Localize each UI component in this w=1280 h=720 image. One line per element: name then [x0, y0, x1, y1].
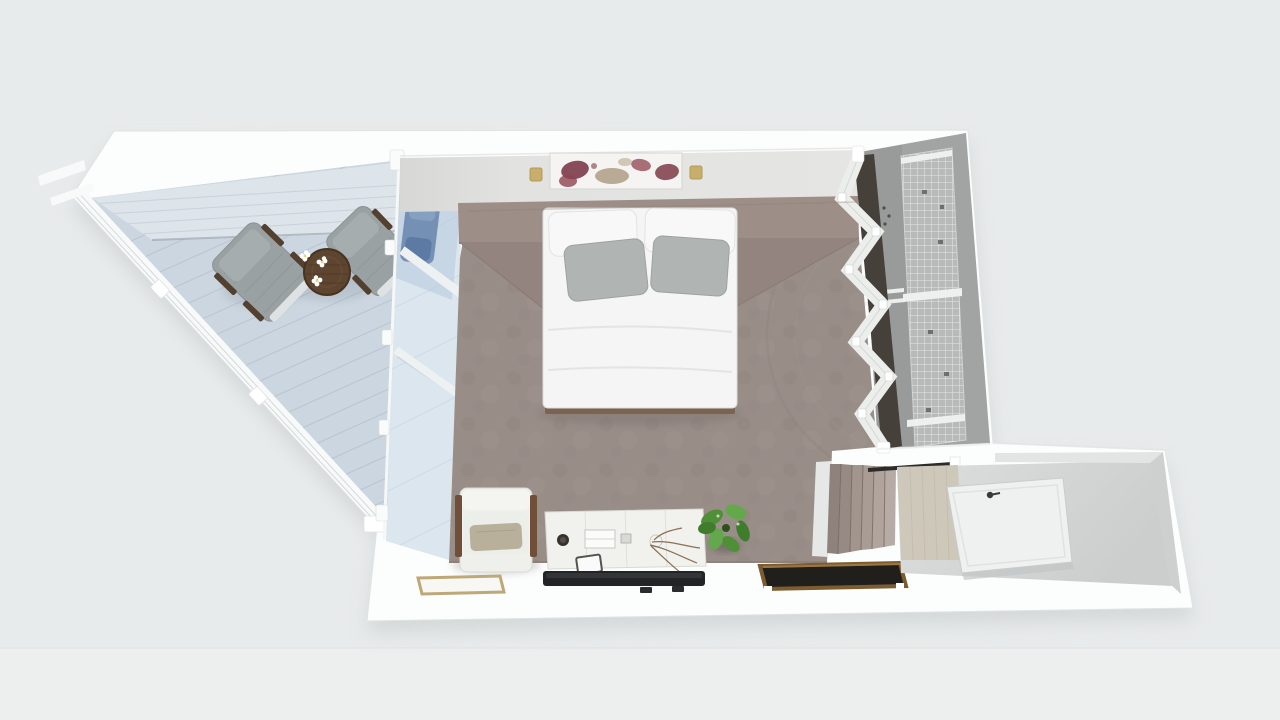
desk-foot	[896, 583, 904, 589]
pillow-gray-right	[650, 235, 730, 296]
decor-square	[621, 534, 631, 543]
desk	[760, 563, 906, 592]
dresser	[545, 509, 706, 575]
tv-bracket	[672, 586, 684, 592]
pillow-gray-left	[563, 238, 648, 302]
floorplan-render	[0, 0, 1280, 720]
tv-bracket	[640, 587, 652, 593]
bed	[538, 208, 742, 425]
desk-foot	[764, 586, 772, 592]
entry-hall	[897, 452, 1181, 594]
door-jamb-bottom	[877, 442, 890, 453]
wall-art	[550, 153, 682, 189]
floorplan-canvas	[0, 0, 1280, 720]
armchair	[452, 488, 540, 574]
sconce-left	[530, 168, 542, 181]
entry-top-wall-face	[995, 452, 1163, 463]
sconce-right	[690, 166, 702, 179]
door-jamb-top	[852, 146, 864, 162]
entry-door	[947, 478, 1074, 580]
armchair-pillow	[469, 523, 522, 552]
balcony-table	[304, 249, 350, 295]
background-lower-band	[0, 648, 1280, 720]
tray-shelf	[418, 576, 504, 594]
